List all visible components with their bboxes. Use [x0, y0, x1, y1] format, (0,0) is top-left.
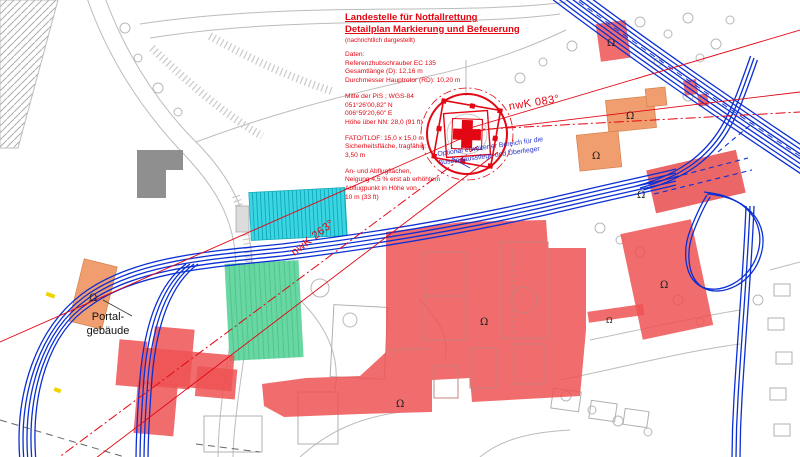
- data-group-reference: Daten: Referenzhubschrauber EC 135 Gesam…: [345, 51, 520, 86]
- building-cross-wing: [112, 323, 241, 441]
- small-gray-annex: [236, 206, 249, 232]
- data-group-departure: An- und Abflugflächen, Neigung 4,5 % ers…: [345, 168, 520, 203]
- building-marker-icon: Ω: [89, 293, 97, 304]
- railway-band: [0, 0, 58, 148]
- legend-line: Referenzhubschrauber EC 135: [345, 60, 520, 69]
- legend-line: Neigung 4,5 % erst ab erhöhtem: [345, 176, 520, 185]
- building-marker-icon: Ω: [660, 280, 668, 291]
- legend-line: 10 m (33 ft): [345, 194, 520, 203]
- building-marker-icon: Ω: [592, 151, 600, 162]
- legend-line: Höhe über NN: 28,0 (91 ft): [345, 119, 520, 128]
- site-plan: Ω Ω Ω Ω Ω Ω Ω Ω Ω Landestelle für Notfal…: [0, 0, 800, 457]
- portal-label-line2: gebäude: [78, 325, 138, 339]
- boundary-dashed-lines: [0, 420, 260, 457]
- legend-line: Gesamtlänge (D): 12,16 m: [345, 68, 520, 77]
- building-strip: [587, 304, 644, 323]
- plan-title-line1: Landestelle für Notfallrettung: [345, 12, 520, 24]
- legend-line: Daten:: [345, 51, 520, 60]
- portal-label-line1: Portal-: [78, 311, 138, 325]
- legend-line: Abflugpunkt in Höhe von: [345, 185, 520, 194]
- building-orange-small: [645, 87, 667, 107]
- building-low-wing: [262, 376, 360, 417]
- south-road-bundle: [732, 206, 754, 457]
- data-group-position: Mitte der PIS ; WGS-84 051°26'00,82" N 0…: [345, 93, 520, 128]
- building-marker-icon: Ω: [606, 316, 613, 325]
- legend-line: 006°59'20,60" E: [345, 110, 520, 119]
- legend-line: An- und Abflugflächen,: [345, 168, 520, 177]
- building-marker-icon: Ω: [396, 399, 404, 410]
- building-marker-icon: Ω: [626, 111, 634, 122]
- portal-building-label: Portal- gebäude: [78, 311, 138, 338]
- plan-title-line2: Detailplan Markierung und Befeuerung: [345, 24, 520, 36]
- legend-line: Durchmesser Hauptrotor (RD): 10,20 m: [345, 77, 520, 86]
- building-marker-icon: Ω: [637, 190, 645, 201]
- area-green: [225, 260, 304, 361]
- building-main-complex: [360, 220, 586, 414]
- building-marker-icon: Ω: [607, 38, 615, 49]
- plan-subtitle: (nachrichtlich dargestellt): [345, 37, 520, 44]
- dark-building: [137, 150, 183, 198]
- building-marker-icon: Ω: [480, 317, 488, 328]
- legend-line: 051°26'00,82" N: [345, 102, 520, 111]
- legend-line: Mitte der PIS ; WGS-84: [345, 93, 520, 102]
- legend-block: Landestelle für Notfallrettung Detailpla…: [345, 12, 520, 203]
